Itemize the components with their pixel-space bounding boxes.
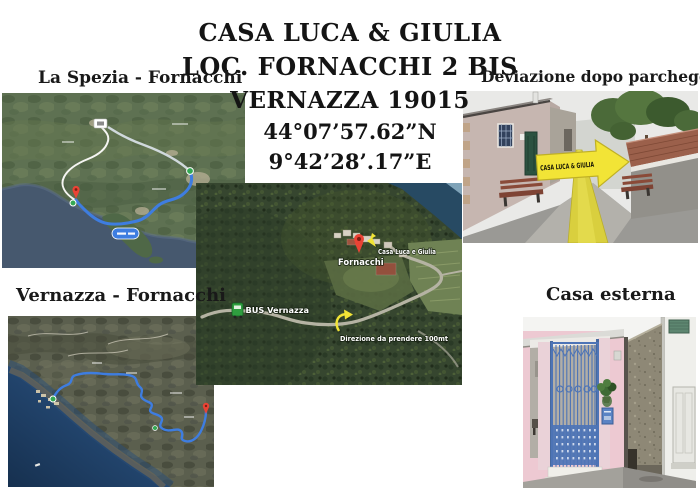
aerial-label-direction: Direzione da prendere 100mt [340, 334, 448, 343]
aerial-photo-image: Fornacchi Casa Luca e Giulia BUS Vernazz… [196, 183, 462, 385]
casa-esterna-photo-image [523, 317, 696, 488]
route-waypoint-marker [70, 200, 76, 206]
pink-house [523, 329, 624, 485]
utility-box [614, 351, 621, 360]
route-waypoint-marker [153, 426, 158, 431]
casa-esterna-graphic [523, 317, 696, 488]
caption-vernazza-map: Vernazza - Fornacchi [16, 285, 226, 306]
caption-la-spezia-map: La Spezia - Fornacchi [38, 68, 242, 88]
title-block: CASA LUCA & GIULIA LOC. FORNACCHI 2 BIS … [165, 16, 535, 176]
right-roof [626, 129, 698, 219]
property-city: VERNAZZA 19015 [165, 84, 535, 117]
white-building [664, 317, 696, 488]
property-name: CASA LUCA & GIULIA [165, 16, 535, 50]
caption-casa-esterna: Casa esterna [546, 284, 676, 305]
mailbox [602, 408, 613, 424]
vernazza-map-image [8, 316, 214, 487]
green-shutter [669, 320, 689, 333]
aerial-label-fornacchi: Fornacchi [338, 257, 384, 267]
gps-longitude: 9°42’28’.17”E [165, 147, 535, 176]
gps-latitude: 44°07’57.62”N [165, 117, 535, 147]
direction-box-icon [94, 119, 107, 128]
route-start-marker [50, 396, 56, 402]
porch-pillar-left [538, 342, 552, 470]
flyer-page: CASA LUCA & GIULIA LOC. FORNACCHI 2 BIS … [0, 0, 700, 500]
caption-deviazione-photo: Deviazione dopo parcheggio [481, 67, 700, 86]
vernazza-map-graphic [8, 316, 214, 487]
white-door [673, 387, 695, 463]
stone-wall [628, 324, 662, 485]
route-duration-badge [112, 228, 139, 239]
aerial-photo-graphic: Fornacchi Casa Luca e Giulia BUS Vernazz… [196, 183, 462, 385]
aerial-label-bus: BUS Vernazza [246, 305, 310, 315]
bus-icon [232, 303, 243, 318]
aerial-label-casa: Casa Luca e Giulia [378, 247, 436, 256]
